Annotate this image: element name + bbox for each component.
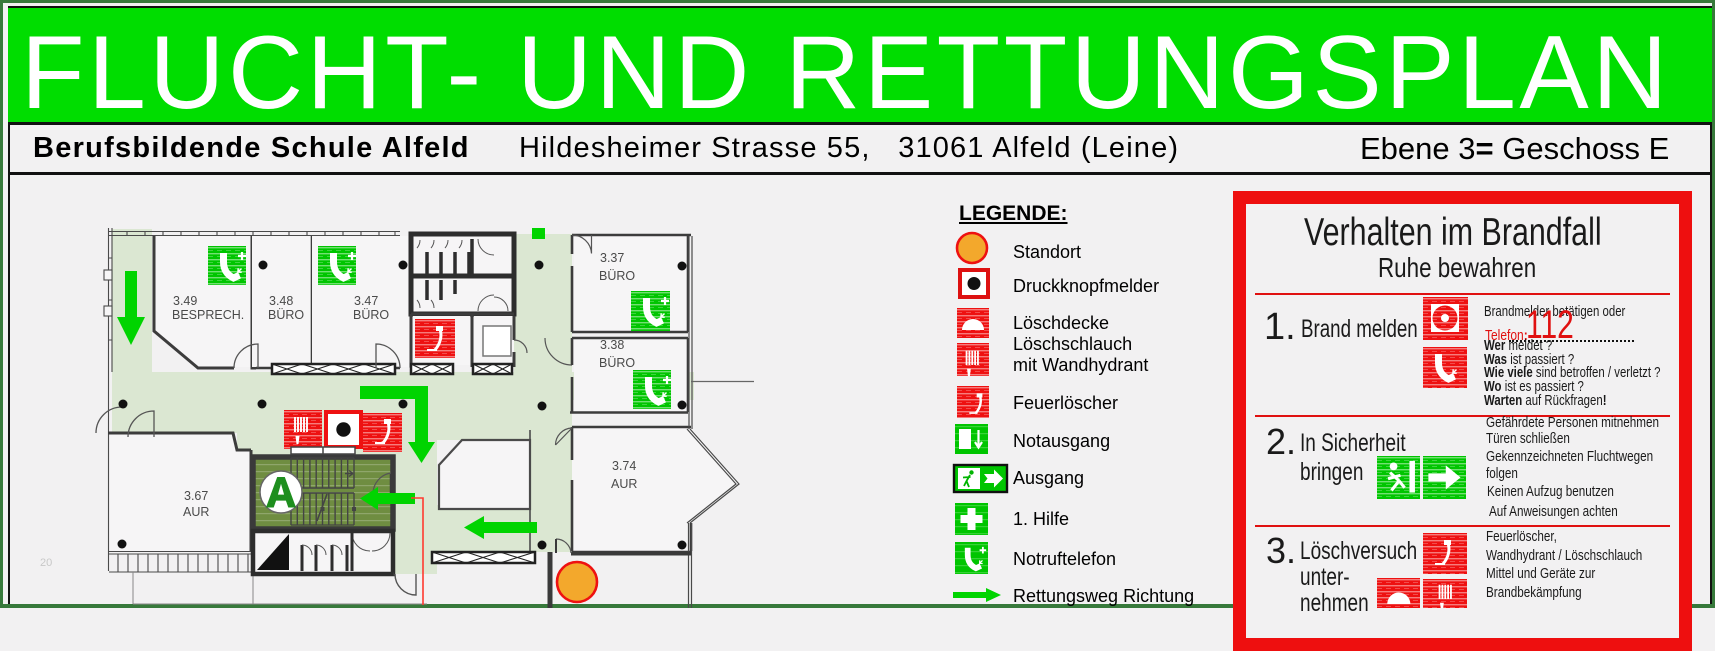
svg-text:AUR: AUR [611,477,637,491]
svg-text:BÜRO: BÜRO [353,308,389,322]
svg-text:3.49: 3.49 [173,294,197,308]
svg-text:20: 20 [40,557,52,569]
svg-text:3.47: 3.47 [354,294,378,308]
svg-text:3.37: 3.37 [600,251,624,265]
svg-text:BESPRECH.: BESPRECH. [172,308,244,322]
svg-text:3.67: 3.67 [184,489,208,503]
svg-text:3.48: 3.48 [269,294,293,308]
svg-text:BÜRO: BÜRO [599,356,635,370]
svg-text:BÜRO: BÜRO [599,269,635,283]
svg-text:3.38: 3.38 [600,338,624,352]
svg-text:BÜRO: BÜRO [268,308,304,322]
svg-text:AUR: AUR [183,505,209,519]
svg-text:3.74: 3.74 [612,459,636,473]
